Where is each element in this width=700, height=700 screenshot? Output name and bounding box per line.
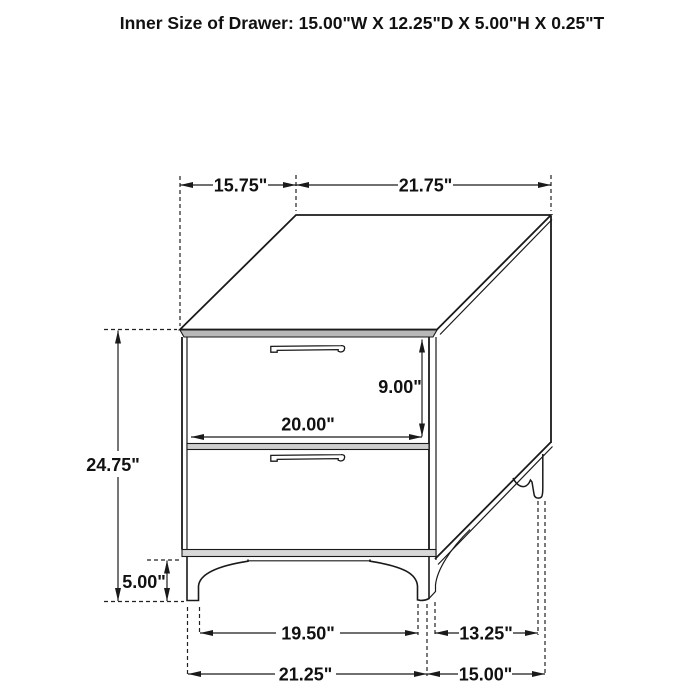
- diagram-canvas: Inner Size of Drawer: 15.00"W X 12.25"D …: [0, 0, 700, 700]
- dim-top-width: 21.75": [399, 176, 453, 196]
- dim-leg-height: 5.00": [122, 572, 166, 592]
- dim-side-leg-span: 13.25": [459, 624, 513, 644]
- dim-base-width: 21.25": [279, 665, 333, 685]
- dim-drawer-height: 9.00": [378, 377, 422, 397]
- drawer-divider: [187, 444, 429, 450]
- dim-top-depth: 15.75": [214, 176, 268, 196]
- dim-overall-height: 24.75": [86, 455, 140, 475]
- dim-base-depth: 15.00": [459, 665, 513, 685]
- bottom-band: [182, 550, 436, 557]
- product-dimension-diagram: Inner Size of Drawer: 15.00"W X 12.25"D …: [0, 0, 700, 700]
- diagram-title: Inner Size of Drawer: 15.00"W X 12.25"D …: [120, 13, 605, 33]
- dim-front-leg-span: 19.50": [281, 624, 335, 644]
- top-edge-band: [180, 330, 437, 337]
- background: [0, 0, 700, 700]
- dim-drawer-width: 20.00": [281, 415, 335, 435]
